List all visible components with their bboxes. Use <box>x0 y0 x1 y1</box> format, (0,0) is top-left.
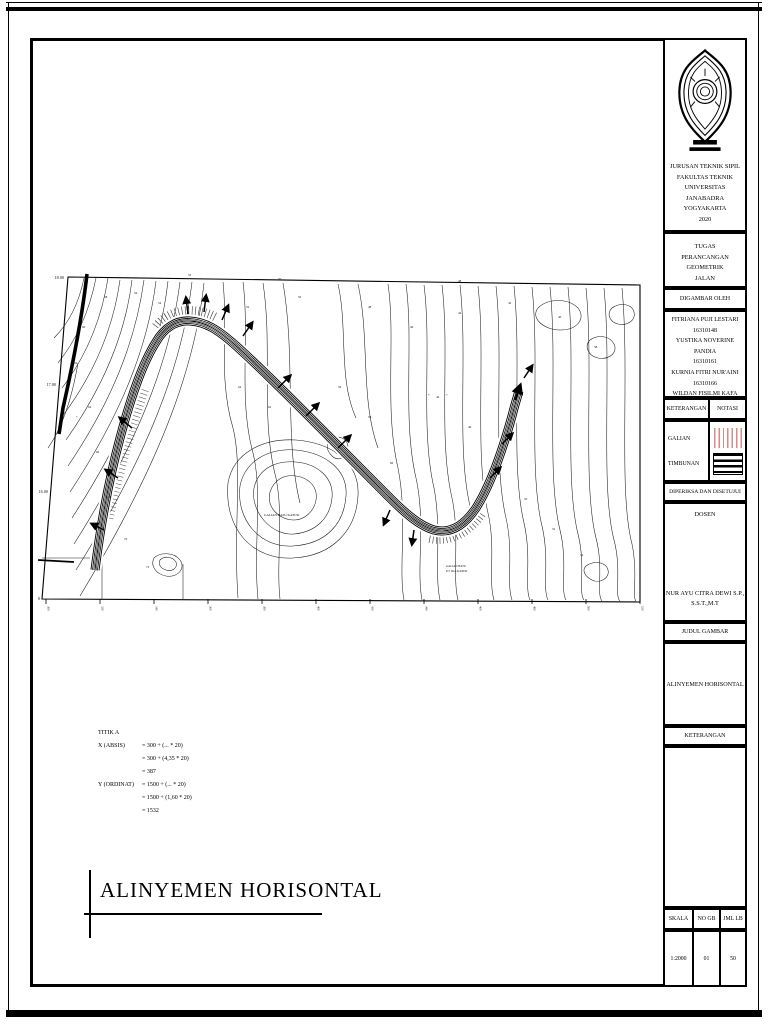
contour-label: 54 <box>158 301 162 305</box>
author-name: KURNIA FITRI NUR'AINI <box>665 368 745 379</box>
institution-line: YOGYAKARTA <box>665 204 745 215</box>
x-line-2: = 300 + (4,35 * 20) <box>142 753 189 766</box>
contour-label: 68 <box>108 495 112 499</box>
y-axis-label: 18.00 <box>55 275 64 280</box>
x-line-1: = 300 + (... * 20) <box>142 740 183 753</box>
contour-label: 40 <box>558 315 562 319</box>
author-nim: 16310166 <box>665 379 745 390</box>
diperiksa-header: DIPERIKSA DAN DISETUJUI <box>663 482 747 502</box>
contour-label: GALIAN BATU <box>446 564 467 568</box>
author-nim: 16310148 <box>665 326 745 337</box>
y-ordinat-label: Y (ORDINAT) <box>98 779 142 792</box>
x-axis-label: 300 <box>47 606 51 611</box>
notasi-label: NOTASI <box>710 400 745 418</box>
contour-label: + <box>428 393 430 397</box>
contour-label: 64 <box>88 405 92 409</box>
contour-label: 38 <box>594 345 598 349</box>
contour-label: 42 <box>508 301 512 305</box>
page-border-top-thin <box>6 2 762 3</box>
x-axis-label: 360 <box>209 606 213 611</box>
contour-label: 72 <box>146 565 150 569</box>
y-line-3: = 1532 <box>142 805 159 818</box>
author-name: YUSTIKA NOVERINE PANDIA <box>665 336 745 357</box>
x-axis-label: 400 <box>317 606 321 611</box>
page-border-left <box>8 2 9 1017</box>
contour-label: 58 <box>104 295 108 299</box>
sheet-title-underline <box>84 913 322 915</box>
contour-label: 62 <box>268 405 272 409</box>
drawing-sheet: { "page": { "background": "#ffffff", "li… <box>0 0 768 1024</box>
contour-label: 50 <box>278 277 282 281</box>
contour-label: 54 <box>580 553 584 557</box>
contour-label: 56 <box>338 385 342 389</box>
contour-label: 60 <box>390 461 394 465</box>
x-axis-label: 380 <box>263 606 267 611</box>
jml-lb-value: 50 <box>721 932 745 985</box>
notation-section: GALIAN TIMBUNAN <box>663 420 747 482</box>
point-a-calculation: TITIK A X (ABSIS) = 300 + (... * 20) = 3… <box>98 727 288 818</box>
institution-line: JURUSAN TEKNIK SIPIL <box>665 162 745 173</box>
contour-label: 64 <box>238 385 242 389</box>
contour-map: 5856546062646668707252504846444240384446… <box>38 268 648 620</box>
contour-label: P.T. IKA KAPUR <box>446 569 467 573</box>
logo-section: JURUSAN TEKNIK SIPIL FAKULTAS TEKNIK UNI… <box>663 38 747 232</box>
tugas-line: PERANCANGAN GEOMETRIK <box>665 253 745 274</box>
contour-label: 62 <box>74 361 78 365</box>
digambar-oleh-header: DIGAMBAR OLEH <box>663 288 747 310</box>
keterangan-bawah-header: KETERANGAN <box>663 726 747 746</box>
contour-label: 52 <box>552 527 556 531</box>
no-gb-value: 01 <box>694 932 721 985</box>
keterangan-notasi-header: KETERANGAN NOTASI <box>663 398 747 420</box>
page-border-bottom <box>6 1010 762 1017</box>
timbunan-label: TIMBUNAN <box>668 461 699 467</box>
dosen-section: DOSEN NUR AYU CITRA DEWI S.P., S.S.T.,M.… <box>663 502 747 622</box>
no-gb-label: NO GB <box>694 910 721 928</box>
title-block: JURUSAN TEKNIK SIPIL FAKULTAS TEKNIK UNI… <box>663 38 747 987</box>
contour-label: 44 <box>436 395 440 399</box>
institution-line: FAKULTAS TEKNIK <box>665 173 745 184</box>
y-axis-label: 17.00 <box>47 382 56 387</box>
contour-label: 46 <box>410 325 414 329</box>
contour-label: 48 <box>496 465 500 469</box>
x-line-3: = 387 <box>142 766 156 779</box>
contour-label: 52 <box>246 305 250 309</box>
tugas-line: JALAN <box>665 274 745 285</box>
y-line-1: = 1500 + (... * 20) <box>142 779 186 792</box>
contour-label: 48 <box>458 279 462 283</box>
x-axis-label: 460 <box>479 606 483 611</box>
page-border-right <box>758 2 759 1017</box>
calc-title: TITIK A <box>98 727 288 740</box>
dosen-name-line: NUR AYU CITRA DEWI S.P., <box>665 589 745 600</box>
contour-label: 50 <box>524 497 528 501</box>
y-axis-label: 16.00 <box>39 489 48 494</box>
author-nim: 16310161 <box>665 357 745 368</box>
contour-label: + <box>76 415 78 419</box>
x-axis-label: 520 <box>641 606 645 611</box>
sheet-title-tickline <box>89 870 91 938</box>
x-axis-label: 320 <box>101 606 105 611</box>
contour-label: + <box>446 393 448 397</box>
contour-label: 70 <box>124 537 128 541</box>
road-slope-hatching <box>108 313 480 537</box>
timbunan-hatch-symbol <box>713 453 743 475</box>
judul-gambar-header: JUDUL GAMBAR <box>663 622 747 642</box>
contour-label: 56 <box>134 291 138 295</box>
author-name: FITRIANA PUJI LESTARI <box>665 315 745 326</box>
tugas-line: TUGAS <box>665 242 745 253</box>
river-line <box>59 274 87 434</box>
x-axis-label: 340 <box>155 606 159 611</box>
galian-label: GALIAN <box>668 436 690 442</box>
y-axis-label: 15.00 <box>38 596 40 601</box>
sheet-title: ALINYEMEN HORISONTAL <box>100 878 383 903</box>
edge-mark <box>38 560 74 562</box>
y-line-2: = 1500 + (1,60 * 20) <box>142 792 192 805</box>
x-axis-label: 440 <box>425 606 429 611</box>
skala-label: SKALA <box>665 910 694 928</box>
contour-label: GALIAN BATU KAPUR <box>264 513 300 517</box>
institution-line: 2020 <box>665 215 745 226</box>
keterangan-empty-box <box>663 746 747 908</box>
judul-gambar-value: ALINYEMEN HORISONTAL <box>663 642 747 726</box>
contour-label: 66 <box>96 450 100 454</box>
institution-line: UNIVERSITAS JANABADRA <box>665 183 745 204</box>
contour-label: 46 <box>468 425 472 429</box>
tugas-section: TUGAS PERANCANGAN GEOMETRIK JALAN <box>663 232 747 288</box>
x-axis-label: 420 <box>371 606 375 611</box>
galian-hatch-symbol <box>714 428 742 448</box>
contour-label: 48 <box>368 305 372 309</box>
authors-section: FITRIANA PUJI LESTARI 16310148 YUSTIKA N… <box>663 310 747 398</box>
scale-header-row: SKALA NO GB JML LB <box>663 908 747 930</box>
contour-label: 52 <box>188 273 192 277</box>
dosen-label: DOSEN <box>665 510 745 521</box>
x-axis-label: 480 <box>533 606 537 611</box>
x-absis-label: X (ABSIS) <box>98 740 142 753</box>
keterangan-label: KETERANGAN <box>665 400 710 418</box>
jml-lb-label: JML LB <box>721 910 745 928</box>
skala-value: 1:2000 <box>665 932 694 985</box>
contour-label: 58 <box>368 415 372 419</box>
contour-label: 50 <box>298 295 302 299</box>
contour-label: 44 <box>458 311 462 315</box>
scale-value-row: 1:2000 01 50 <box>663 930 747 987</box>
contour-label: 60 <box>82 325 86 329</box>
page-border-top-thick <box>6 7 762 11</box>
university-emblem-icon <box>673 48 737 157</box>
dosen-name-line: S.S.T.,M.T <box>665 599 745 610</box>
x-axis-label: 500 <box>587 606 591 611</box>
